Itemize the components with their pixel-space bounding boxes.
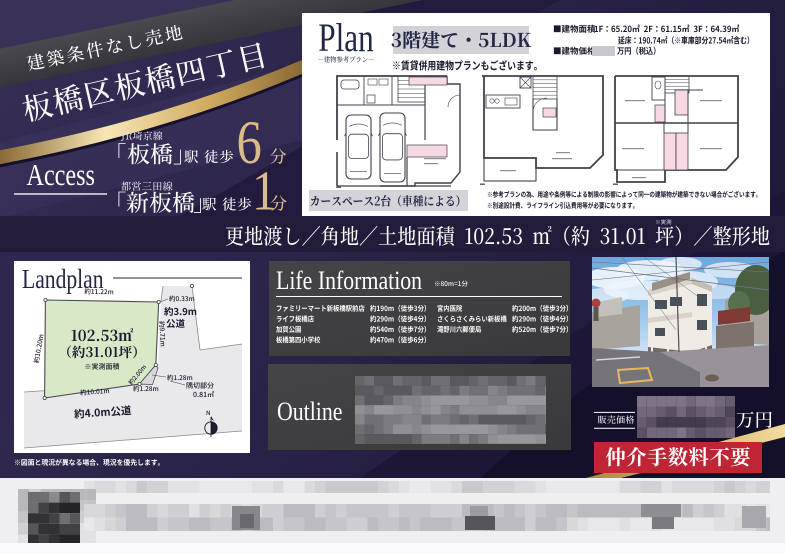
- svg-text:Life Information: Life Information: [276, 267, 422, 295]
- svg-text:Outline: Outline: [277, 398, 342, 426]
- svg-text:Access: Access: [27, 158, 95, 193]
- svg-text:Landplan: Landplan: [22, 265, 104, 295]
- svg-text:Plan: Plan: [318, 15, 374, 60]
- svg-text:1: 1: [252, 161, 277, 223]
